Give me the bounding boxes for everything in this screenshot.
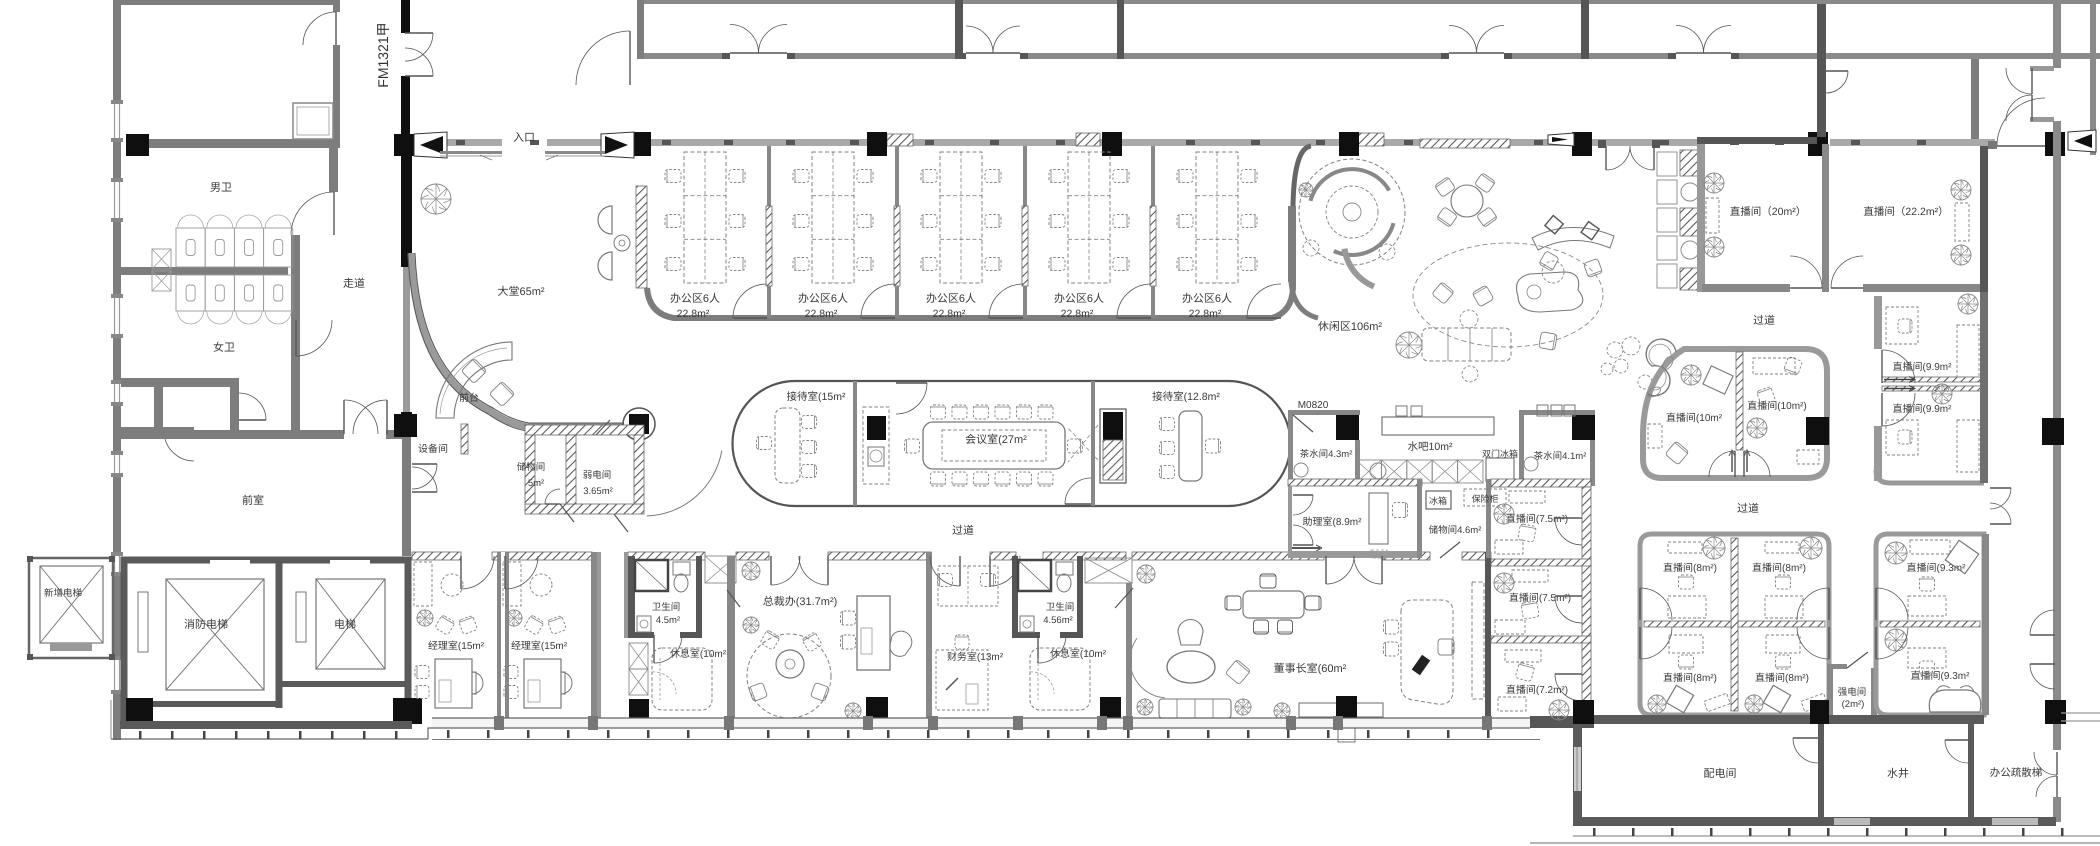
svg-text:保险柜: 保险柜: [1471, 494, 1498, 504]
svg-text:直播间(7.2m²): 直播间(7.2m²): [1506, 684, 1568, 696]
svg-text:前台: 前台: [459, 392, 479, 404]
svg-text:新增电梯: 新增电梯: [44, 587, 83, 599]
svg-text:冰箱: 冰箱: [1429, 496, 1447, 506]
svg-text:办公区6人: 办公区6人: [670, 292, 720, 305]
svg-text:经理室(15m²: 经理室(15m²: [511, 640, 568, 652]
svg-text:卫生间: 卫生间: [1046, 602, 1075, 613]
svg-text:过道: 过道: [1737, 502, 1759, 515]
svg-text:休息室(10m²: 休息室(10m²: [670, 648, 727, 660]
svg-text:办公疏散梯: 办公疏散梯: [1990, 767, 2043, 779]
svg-text:储物间: 储物间: [517, 462, 546, 473]
svg-text:储物间4.6m²: 储物间4.6m²: [1429, 525, 1482, 536]
svg-text:茶水间4.1m²: 茶水间4.1m²: [1534, 451, 1587, 462]
svg-text:直播间（22.2m²）: 直播间（22.2m²）: [1863, 206, 1948, 218]
svg-text:助理室(8.9m²: 助理室(8.9m²: [1303, 516, 1363, 528]
svg-text:直播间(9.9m²: 直播间(9.9m²: [1893, 403, 1953, 415]
svg-text:女卫: 女卫: [213, 341, 235, 354]
svg-text:FM1321甲: FM1321甲: [375, 22, 391, 87]
svg-text:22.8m²: 22.8m²: [677, 308, 710, 320]
svg-text:入口: 入口: [513, 131, 535, 144]
svg-text:休闲区106m²: 休闲区106m²: [1318, 320, 1383, 333]
svg-text:接待室(15m²: 接待室(15m²: [787, 391, 846, 403]
svg-text:直播间（20m²）: 直播间（20m²）: [1730, 206, 1806, 218]
svg-text:走道: 走道: [343, 277, 365, 290]
svg-text:(2m²): (2m²): [1842, 699, 1865, 710]
svg-text:电梯: 电梯: [334, 618, 356, 631]
svg-text:直播间(8m²): 直播间(8m²): [1752, 562, 1806, 574]
svg-text:5m²: 5m²: [528, 478, 544, 489]
svg-text:直播间(9.9m²: 直播间(9.9m²: [1893, 361, 1953, 373]
svg-text:水吧10m²: 水吧10m²: [1408, 441, 1453, 453]
svg-text:男卫: 男卫: [210, 182, 232, 194]
svg-text:大堂65m²: 大堂65m²: [497, 285, 544, 298]
svg-text:卫生间: 卫生间: [652, 602, 681, 613]
svg-text:办公区6人: 办公区6人: [1054, 292, 1104, 305]
svg-text:过道: 过道: [952, 524, 974, 537]
svg-text:直播间(7.5m²): 直播间(7.5m²): [1509, 592, 1571, 604]
svg-text:直播间(8m²): 直播间(8m²): [1755, 672, 1809, 684]
svg-text:前室: 前室: [242, 494, 264, 507]
svg-text:办公区6人: 办公区6人: [1182, 292, 1232, 305]
svg-text:过道: 过道: [1753, 314, 1775, 327]
svg-text:财务室(13m²: 财务室(13m²: [947, 651, 1004, 663]
svg-text:直播间(8m²): 直播间(8m²): [1663, 672, 1717, 684]
svg-text:直播间(7.5m²): 直播间(7.5m²): [1506, 513, 1568, 525]
svg-text:休息室(10m²: 休息室(10m²: [1050, 648, 1107, 660]
svg-text:消防电梯: 消防电梯: [184, 618, 228, 631]
svg-text:4.56m²: 4.56m²: [1043, 615, 1073, 626]
svg-text:经理室(15m²: 经理室(15m²: [428, 640, 485, 652]
svg-text:董事长室(60m²: 董事长室(60m²: [1274, 662, 1347, 675]
svg-text:总裁办(31.7m²): 总裁办(31.7m²): [763, 595, 838, 608]
svg-text:3.65m²: 3.65m²: [583, 486, 613, 497]
svg-text:直播间(10m²): 直播间(10m²): [1747, 400, 1806, 412]
svg-text:配电间: 配电间: [1704, 767, 1737, 780]
svg-text:M0820: M0820: [1298, 400, 1329, 411]
svg-text:弱电间: 弱电间: [583, 470, 612, 481]
svg-text:设备间: 设备间: [418, 443, 448, 455]
svg-text:强电间: 强电间: [1838, 687, 1867, 698]
svg-text:直播间(8m²): 直播间(8m²): [1663, 562, 1717, 574]
svg-text:办公区6人: 办公区6人: [798, 292, 848, 305]
svg-text:22.8m²: 22.8m²: [933, 308, 966, 320]
svg-text:22.8m²: 22.8m²: [1189, 308, 1222, 320]
svg-text:会议室(27m²: 会议室(27m²: [965, 433, 1027, 446]
svg-text:水井: 水井: [1887, 767, 1909, 780]
svg-text:茶水间4.3m²: 茶水间4.3m²: [1300, 449, 1353, 460]
svg-text:接待室(12.8m²: 接待室(12.8m²: [1152, 391, 1220, 403]
svg-text:办公区6人: 办公区6人: [926, 292, 976, 305]
svg-text:4.5m²: 4.5m²: [656, 615, 680, 626]
svg-text:22.8m²: 22.8m²: [805, 308, 838, 320]
svg-text:22.8m²: 22.8m²: [1061, 308, 1094, 320]
svg-text:直播间(10m²: 直播间(10m²: [1666, 412, 1723, 424]
